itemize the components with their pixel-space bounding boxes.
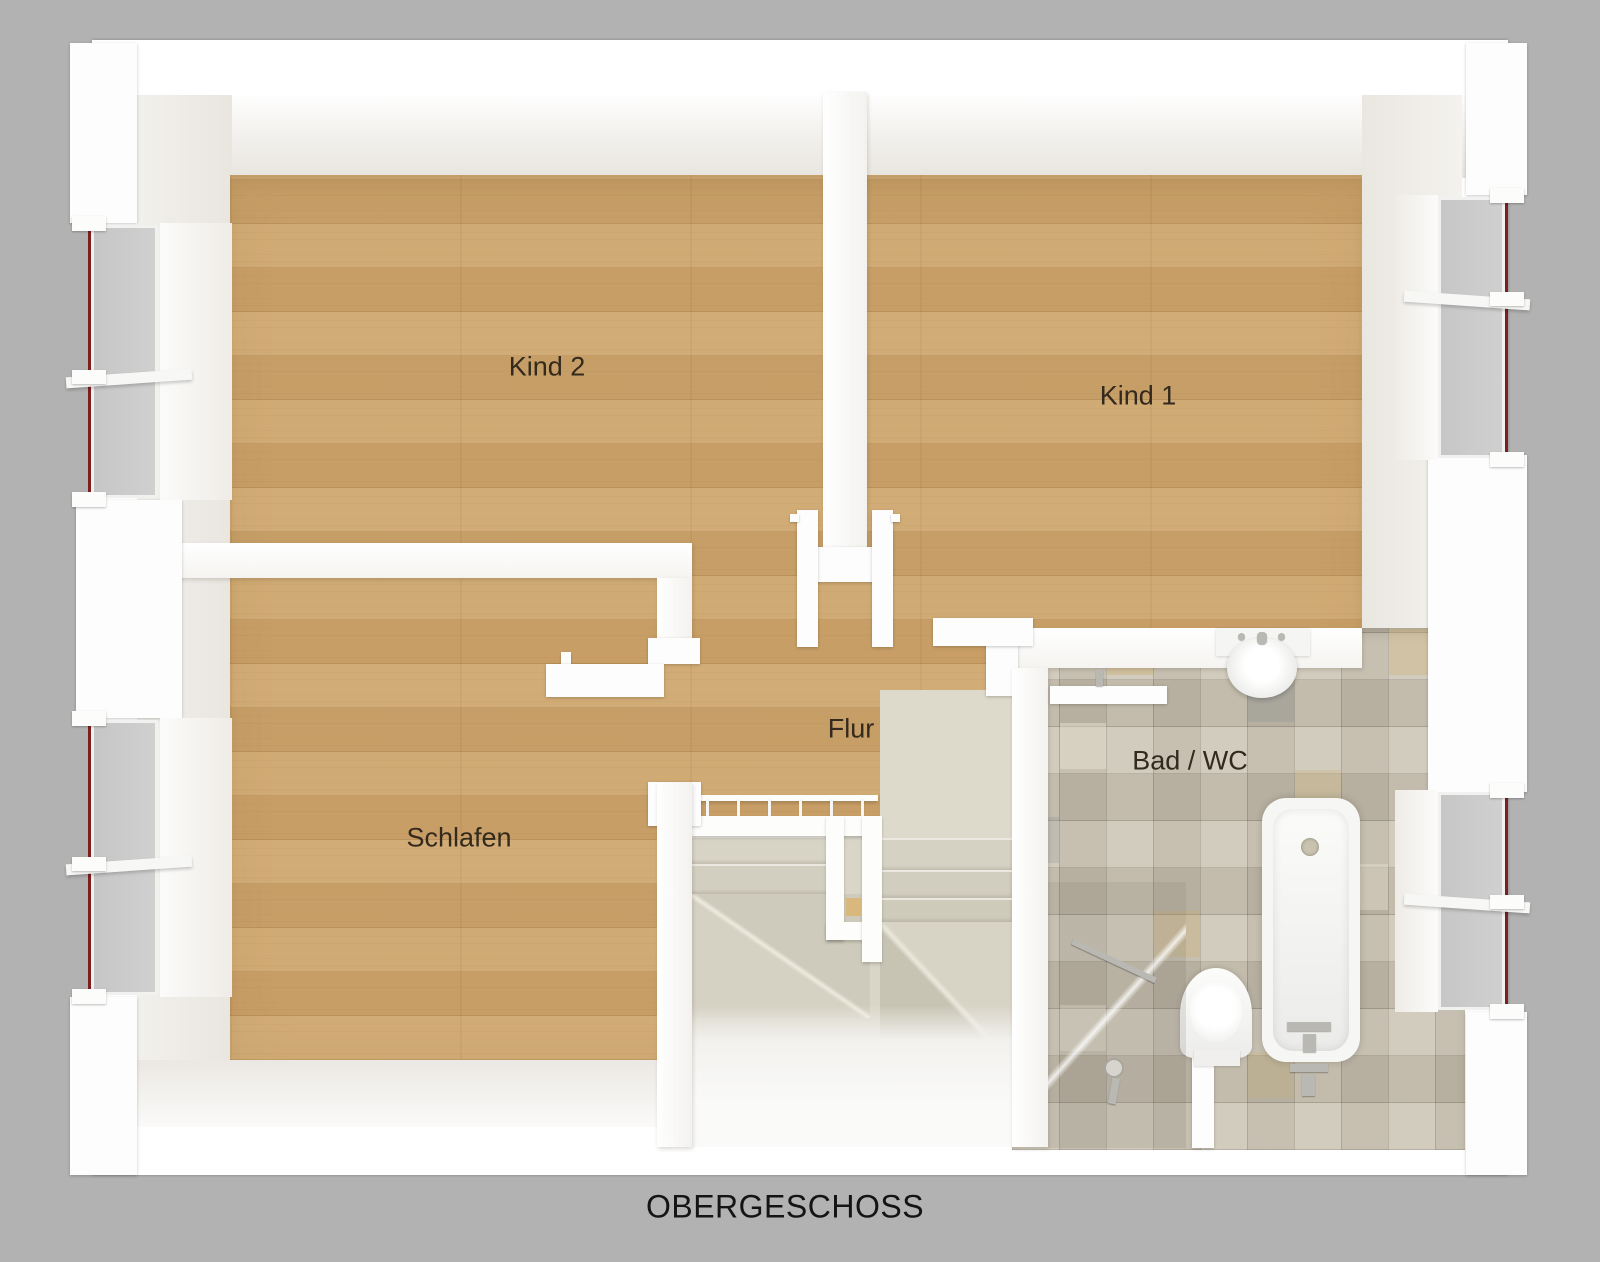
wall-corner-top-right	[1466, 43, 1527, 195]
shower-enclosure	[1048, 882, 1186, 1148]
window-reveal	[1395, 195, 1438, 460]
stair-handrail-top	[694, 795, 878, 801]
tile-accent	[1060, 723, 1106, 769]
wall-schlafen-stair	[657, 782, 692, 1147]
bathtub-drain	[1301, 838, 1319, 856]
window-glazing-line	[88, 227, 91, 496]
wall-corner-top-left	[70, 43, 137, 223]
bathroom-shelf	[1050, 686, 1167, 704]
room-label-bad-wc: Bad / WC	[1132, 746, 1248, 777]
window-frame-nub	[1490, 1004, 1524, 1019]
wall-kind1-kind2	[823, 92, 867, 547]
room-label-flur: Flur	[828, 714, 875, 745]
stair-top-step-wood	[846, 898, 862, 916]
door-leaf-schlafen	[546, 664, 664, 697]
door-handle	[891, 514, 900, 522]
window-left-bottom	[70, 718, 232, 997]
wall-pier-right	[1428, 455, 1527, 792]
window-frame-nub	[1490, 292, 1524, 306]
door-leaf-kind1	[872, 510, 893, 647]
room-label-kind2: Kind 2	[509, 352, 586, 383]
floor-faucet	[1290, 1064, 1328, 1072]
floor-faucet-stem	[1302, 1074, 1315, 1096]
window-left-top	[70, 223, 232, 500]
wall-corner-bottom-right	[1466, 1012, 1527, 1175]
wall-face-top	[137, 95, 1467, 178]
window-frame-nub	[72, 216, 106, 231]
window-frame-nub	[1490, 188, 1524, 203]
window-frame-nub	[72, 711, 106, 726]
window-glazing-line	[1505, 199, 1508, 456]
window-glass	[91, 225, 158, 498]
room-label-kind1: Kind 1	[1100, 381, 1177, 412]
window-right-top	[1362, 195, 1527, 460]
toilet-base	[1194, 1050, 1240, 1066]
bathtub-faucet-spout	[1303, 1034, 1316, 1052]
window-frame-nub	[1490, 895, 1524, 909]
door-jamb	[648, 638, 700, 664]
wall-kind2-schlafen	[132, 543, 692, 578]
window-frame-nub	[72, 857, 106, 871]
stair-newel-frame-right	[862, 816, 882, 962]
window-frame-nub	[1490, 452, 1524, 467]
shower-head	[1104, 1058, 1124, 1078]
window-right-bottom	[1362, 790, 1527, 1012]
stair-step	[690, 864, 828, 894]
stair-lower-landing	[690, 1005, 1012, 1147]
stair-step	[690, 836, 828, 864]
stair-railing	[692, 816, 880, 836]
stair-step	[880, 838, 1012, 870]
wall-bathroom-west	[1012, 668, 1048, 1147]
bathtub-faucet	[1287, 1022, 1331, 1031]
door-leaf-kind2	[797, 510, 818, 647]
toilet-seat	[1190, 980, 1242, 1042]
wall-corner-bottom-left	[70, 997, 137, 1175]
sink-handle	[1238, 633, 1245, 640]
wall-pier-left	[76, 500, 182, 718]
door-handle	[790, 514, 799, 522]
stair-step	[880, 898, 1012, 922]
window-frame-nub	[72, 492, 106, 507]
window-glass	[1438, 197, 1505, 458]
shelf-tap	[1096, 670, 1103, 686]
sink-basin	[1227, 638, 1297, 698]
window-frame-nub	[1490, 783, 1524, 798]
window-frame-nub	[72, 989, 106, 1004]
stair-newel-frame-bottom	[826, 922, 864, 940]
window-reveal	[160, 223, 232, 500]
floor-plan: Kind 2 Kind 1 Schlafen Flur Bad / WC OBE…	[0, 0, 1600, 1262]
room-label-schlafen: Schlafen	[406, 823, 511, 854]
stair-landing-top	[880, 690, 1012, 838]
sink-faucet	[1257, 632, 1267, 644]
sink-handle	[1278, 633, 1285, 640]
floor-title: OBERGESCHOSS	[646, 1189, 924, 1226]
window-frame-nub	[72, 370, 106, 384]
stair-step	[880, 870, 1012, 898]
door-leaf-bathroom	[933, 618, 1033, 646]
wall-face-bottom	[137, 1060, 693, 1127]
wall-schlafen-flur-upper	[657, 578, 692, 640]
